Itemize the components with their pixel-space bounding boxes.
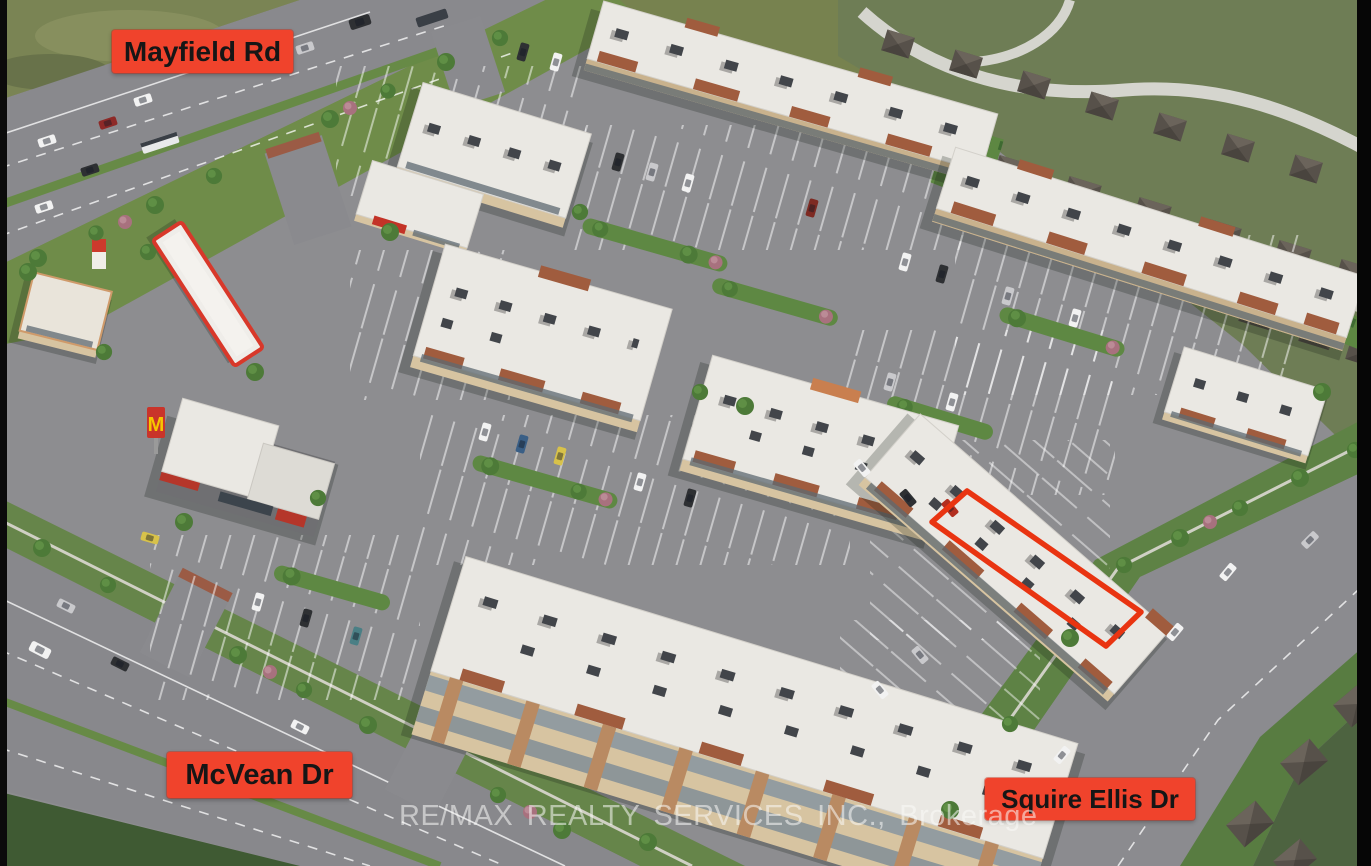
mcdonalds-m: M <box>148 414 165 436</box>
pylon-sign <box>92 239 106 269</box>
brokerage-watermark: RE/MAX REALTY SERVICES INC., Brokerage <box>399 800 1038 833</box>
right-edge-strip <box>1357 0 1371 866</box>
road-label-mayfield: Mayfield Rd <box>112 30 293 73</box>
left-edge-strip <box>0 0 7 866</box>
aerial-plaza-rendering: M <box>0 0 1371 866</box>
site-plan-rendering: M <box>0 0 1371 866</box>
road-label-mcvean: McVean Dr <box>167 752 352 798</box>
